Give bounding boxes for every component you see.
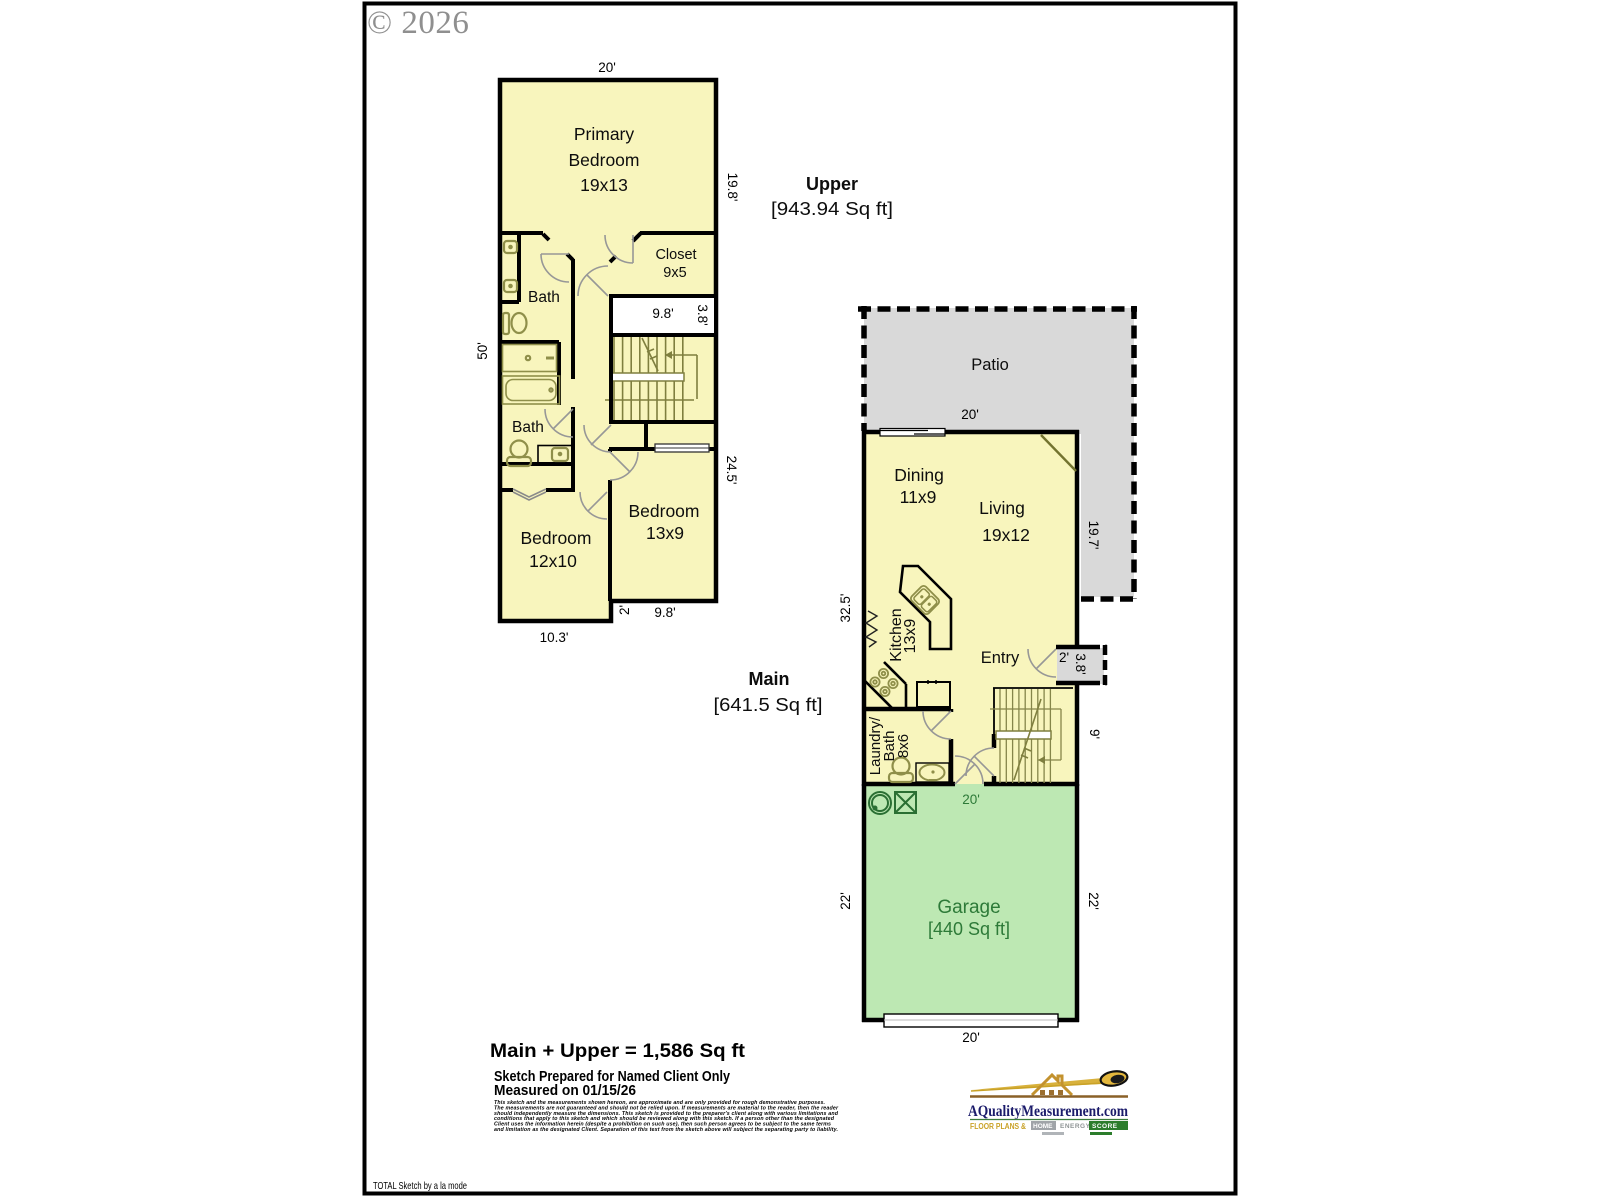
svg-text:[641.5 Sq ft]: [641.5 Sq ft] (714, 695, 823, 715)
svg-text:SCORE: SCORE (1092, 1123, 1118, 1130)
svg-text:22': 22' (838, 892, 853, 910)
svg-text:9.8': 9.8' (652, 306, 673, 321)
svg-text:13x9: 13x9 (902, 619, 919, 654)
svg-text:Garage: Garage (937, 897, 1000, 918)
svg-text:[440 Sq ft]: [440 Sq ft] (928, 919, 1010, 939)
svg-text:10.3': 10.3' (540, 630, 569, 645)
svg-text:19x13: 19x13 (580, 175, 628, 195)
svg-text:12x10: 12x10 (529, 551, 577, 571)
svg-text:24.5': 24.5' (724, 456, 739, 485)
svg-text:Closet: Closet (655, 247, 696, 263)
svg-text:50': 50' (475, 342, 490, 360)
svg-text:[943.94 Sq ft]: [943.94 Sq ft] (771, 199, 893, 219)
svg-text:Dining: Dining (894, 465, 944, 485)
svg-text:20': 20' (962, 1030, 980, 1045)
svg-text:2': 2' (1059, 650, 1069, 665)
svg-text:9': 9' (1087, 729, 1102, 739)
svg-text:11x9: 11x9 (900, 487, 937, 507)
svg-text:2': 2' (617, 605, 632, 615)
svg-text:8x6: 8x6 (895, 734, 912, 758)
svg-text:19.7': 19.7' (1086, 521, 1101, 550)
svg-text:3.8': 3.8' (1073, 653, 1088, 674)
svg-text:Measured on 01/15/26: Measured on 01/15/26 (494, 1083, 636, 1099)
svg-text:9.8': 9.8' (654, 605, 675, 620)
svg-text:Bedroom: Bedroom (520, 528, 591, 548)
svg-text:AQualityMeasurement.com: AQualityMeasurement.com (968, 1103, 1128, 1120)
svg-text:20': 20' (598, 60, 616, 75)
svg-text:Upper: Upper (806, 174, 858, 194)
svg-text:19x12: 19x12 (982, 525, 1030, 545)
svg-text:and limitation as the designat: and limitation as the designated Client.… (494, 1127, 839, 1133)
svg-text:ENERGY: ENERGY (1060, 1123, 1091, 1130)
svg-text:19.8': 19.8' (725, 173, 740, 202)
svg-text:13x9: 13x9 (646, 523, 684, 543)
svg-text:Primary: Primary (574, 124, 635, 144)
svg-text:Bedroom: Bedroom (568, 150, 639, 170)
svg-text:9x5: 9x5 (663, 265, 686, 281)
svg-text:Entry: Entry (981, 649, 1020, 667)
svg-text:Bath: Bath (528, 289, 560, 306)
svg-text:Bath: Bath (512, 419, 544, 436)
svg-text:FLOOR PLANS &: FLOOR PLANS & (970, 1122, 1026, 1131)
svg-text:TOTAL Sketch by a la mode: TOTAL Sketch by a la mode (373, 1180, 467, 1192)
svg-text:Main + Upper = 1,586 Sq ft: Main + Upper = 1,586 Sq ft (490, 1040, 746, 1062)
svg-text:Patio: Patio (971, 356, 1009, 374)
svg-text:22': 22' (1086, 892, 1101, 910)
svg-text:32.5': 32.5' (838, 594, 853, 623)
svg-text:Living: Living (979, 498, 1025, 518)
svg-text:20': 20' (962, 792, 980, 807)
svg-text:Main: Main (748, 669, 789, 689)
svg-text:Bedroom: Bedroom (628, 501, 699, 521)
svg-text:3.8': 3.8' (695, 304, 710, 325)
svg-text:HOME: HOME (1033, 1123, 1053, 1130)
svg-text:20': 20' (961, 407, 979, 422)
svg-text:© 2026: © 2026 (367, 5, 469, 41)
